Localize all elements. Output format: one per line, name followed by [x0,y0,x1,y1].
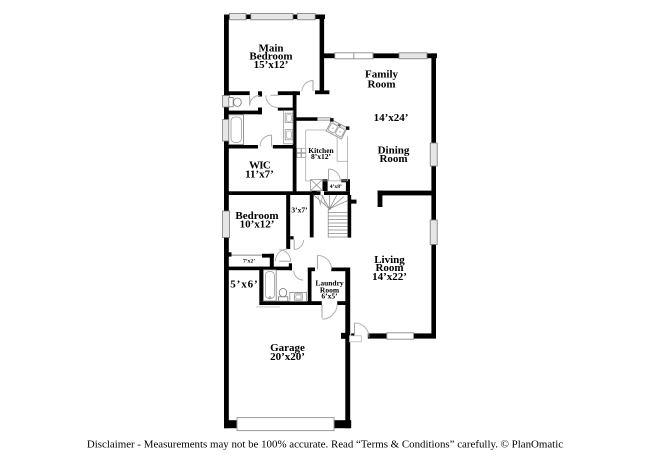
svg-text:Disclaimer - Measurements may: Disclaimer - Measurements may not be 100… [87,439,563,451]
svg-text:6’x5’: 6’x5’ [321,292,337,301]
svg-text:4’x8’: 4’x8’ [330,184,342,190]
svg-text:7’x2’: 7’x2’ [243,259,255,265]
svg-text:5’x6’: 5’x6’ [230,278,258,290]
svg-text:Room: Room [367,79,395,91]
svg-text:11’x7’: 11’x7’ [245,168,274,180]
svg-text:20’x20’: 20’x20’ [270,351,305,363]
svg-text:15’x12’: 15’x12’ [254,59,289,71]
svg-text:8’x12’: 8’x12’ [311,152,331,161]
svg-text:Room: Room [379,153,407,165]
svg-text:10’x12’: 10’x12’ [240,219,275,231]
svg-text:14’x24’: 14’x24’ [374,112,409,124]
svg-text:3’x7’: 3’x7’ [291,205,307,214]
svg-text:14’x22’: 14’x22’ [372,271,407,283]
